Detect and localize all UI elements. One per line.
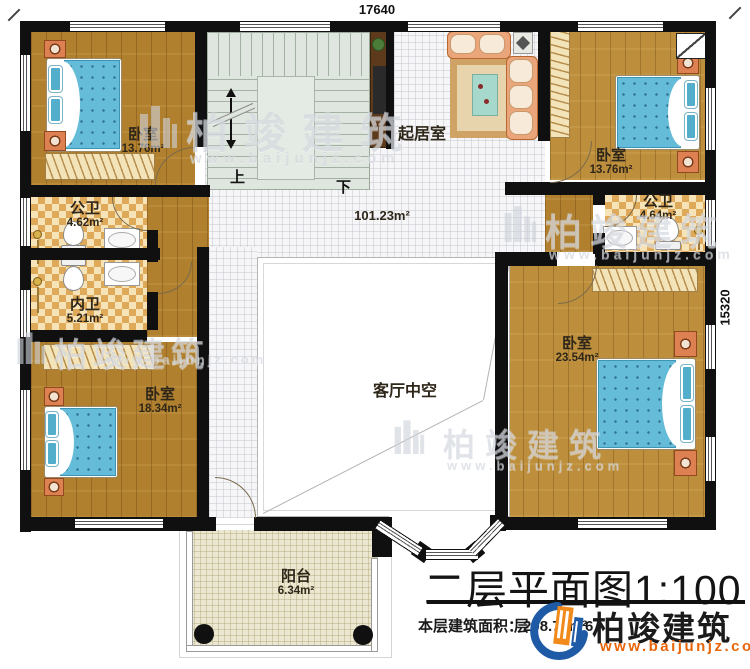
wall [593, 233, 605, 254]
balcony-column [194, 624, 214, 644]
balcony-rail-left [186, 531, 193, 649]
wall [195, 21, 207, 147]
wardrobe [550, 28, 570, 138]
balcony-column [353, 625, 373, 645]
pillow [681, 365, 693, 401]
window [20, 390, 31, 470]
stairs-down-label: 下 [336, 176, 351, 197]
right-corridor-floor [545, 195, 593, 252]
window [705, 200, 716, 246]
tv [373, 66, 386, 114]
bedroom-top-right-label: 卧室 13.76m² [590, 147, 633, 177]
obscured-text: 层 [514, 615, 529, 636]
wall [495, 257, 508, 517]
void-label: 客厅中空 [373, 383, 437, 401]
floor-plan-page: 上 下 [0, 0, 750, 669]
wall [538, 21, 550, 141]
bedroom-bottom-left-label: 卧室 18.34m² [139, 386, 182, 416]
window [240, 21, 330, 32]
stair-arrow-down [226, 140, 236, 149]
nightstand [677, 151, 699, 173]
sink [104, 262, 140, 286]
wall [593, 195, 605, 205]
stairs-up-label: 上 [230, 166, 245, 187]
sink [603, 226, 637, 250]
pillow [46, 441, 58, 466]
pillow [685, 113, 697, 140]
brand-logo-icon [528, 601, 594, 661]
sofa-cushion [509, 111, 533, 135]
pillow [681, 406, 693, 442]
window [20, 55, 31, 131]
shower-rail [37, 287, 39, 313]
wall [505, 182, 716, 195]
stair-treads-top [207, 32, 370, 76]
bedroom-top-left-label: 卧室 13.76m² [122, 126, 165, 156]
window [75, 518, 163, 529]
dimension-tick [729, 7, 742, 20]
window [705, 325, 716, 369]
nightstand [44, 40, 66, 58]
dimension-top: 17640 [340, 2, 414, 17]
pillow [46, 412, 58, 437]
stair-landing [257, 76, 315, 180]
pillow [685, 81, 697, 108]
bath-public-right-label: 公卫 4.64m² [640, 193, 676, 223]
window [705, 88, 716, 150]
pillow [49, 66, 62, 92]
sofa-cushion [509, 85, 533, 109]
stair-arrow-up [226, 88, 236, 97]
nightstand [674, 331, 697, 357]
window [578, 518, 667, 529]
bath-inner-left-label: 内卫 5.21m² [67, 296, 103, 326]
nightstand [674, 450, 697, 476]
brand-url: www.baijunjz.com [600, 638, 750, 655]
wall [20, 185, 210, 197]
window [705, 437, 716, 481]
plant [372, 38, 385, 51]
shower-head [33, 230, 42, 239]
wall [254, 517, 378, 531]
stair-treads-right [315, 76, 370, 190]
sofa-cushion [509, 59, 533, 83]
coffee-table [472, 74, 498, 116]
wall [20, 248, 160, 260]
wardrobe [45, 153, 155, 180]
window [578, 21, 663, 32]
balcony-rail-bottom [186, 645, 378, 652]
flower-decor [478, 84, 483, 89]
stair-arrow-line [230, 98, 232, 142]
pillow [49, 97, 62, 123]
wall [147, 292, 158, 330]
bedroom-bottom-right-label: 卧室 23.54m² [556, 335, 599, 365]
toilet [63, 266, 84, 291]
dimension-right: 15320 [718, 278, 733, 338]
sofa-cushion [479, 34, 505, 54]
flower-decor [484, 99, 489, 104]
wall [197, 247, 209, 517]
bath-public-left-label: 公卫 4.62m² [67, 200, 103, 230]
toilet-tank [655, 241, 681, 250]
wall [20, 330, 147, 342]
shower-head [694, 226, 703, 235]
hall-area-label: 101.23m² [354, 209, 410, 224]
nightstand [44, 131, 66, 151]
shower-head [33, 277, 42, 286]
sofa-cushion [450, 34, 476, 54]
living-room-label: 起居室 [398, 126, 446, 144]
wardrobe [592, 268, 698, 292]
window [70, 21, 165, 32]
wall [147, 230, 158, 262]
wall [595, 252, 716, 266]
balcony-label: 阳台 6.34m² [278, 568, 314, 598]
nightstand [44, 478, 64, 496]
window [20, 198, 31, 246]
nightstand [44, 387, 64, 406]
dimension-tick [8, 9, 21, 22]
corner-window [676, 33, 706, 59]
wardrobe [43, 344, 155, 370]
wall [386, 21, 394, 149]
window [20, 290, 31, 337]
window [408, 21, 500, 32]
shower-rail [698, 236, 700, 250]
floor-area-label: 本层建筑面积： [418, 618, 523, 635]
